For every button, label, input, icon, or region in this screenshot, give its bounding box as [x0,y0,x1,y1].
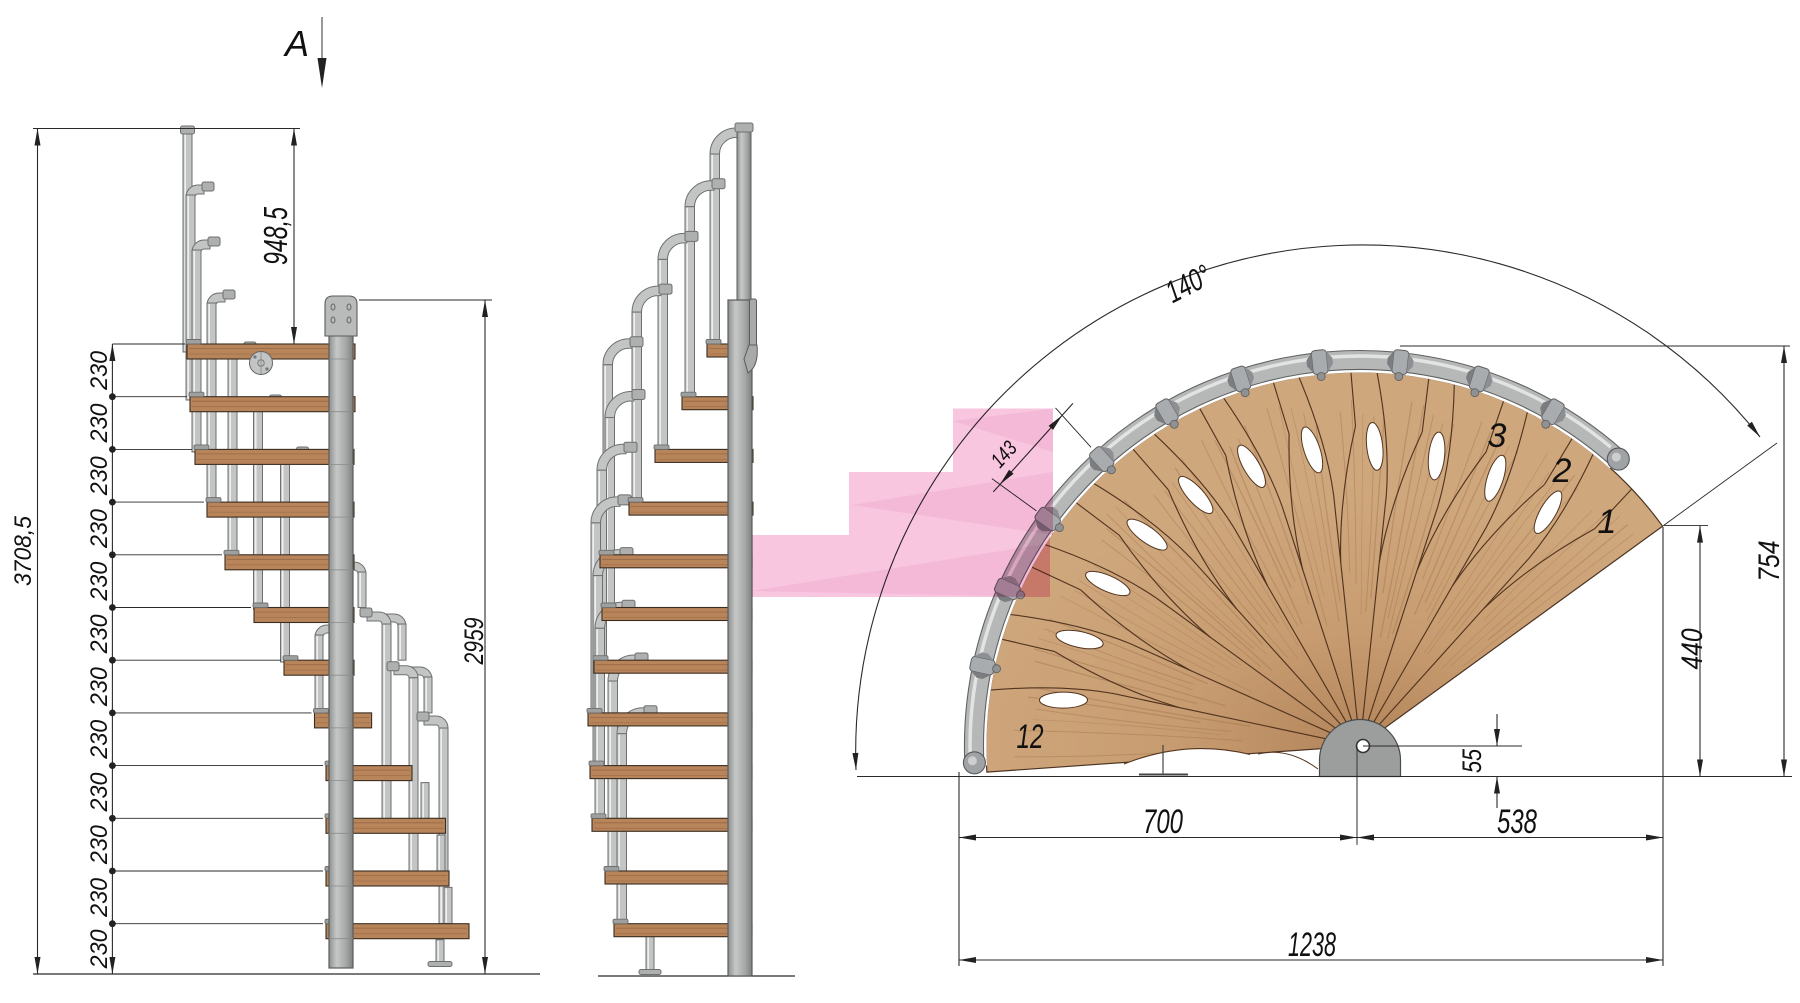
svg-text:2959: 2959 [459,618,489,666]
svg-text:700: 700 [1143,803,1183,841]
svg-text:12: 12 [1017,718,1044,756]
svg-text:440: 440 [1676,628,1709,669]
svg-text:3708,5: 3708,5 [10,515,37,586]
svg-text:1238: 1238 [1288,926,1336,964]
svg-text:754: 754 [1753,541,1786,582]
svg-text:230: 230 [86,929,113,970]
svg-text:230: 230 [86,350,113,391]
svg-text:55: 55 [1457,748,1487,773]
svg-text:230: 230 [86,824,113,865]
svg-text:2: 2 [1552,452,1572,490]
svg-text:230: 230 [86,877,113,918]
svg-text:230: 230 [86,456,113,497]
svg-text:A: A [283,23,309,64]
svg-text:3: 3 [1488,417,1507,455]
svg-text:230: 230 [86,719,113,760]
svg-text:948,5: 948,5 [257,207,294,265]
svg-text:230: 230 [86,508,113,549]
svg-text:230: 230 [86,772,113,813]
svg-text:538: 538 [1497,803,1537,841]
svg-text:230: 230 [86,614,113,655]
svg-text:230: 230 [86,666,113,707]
svg-text:230: 230 [86,561,113,602]
svg-text:230: 230 [86,403,113,444]
svg-text:1: 1 [1598,503,1617,541]
